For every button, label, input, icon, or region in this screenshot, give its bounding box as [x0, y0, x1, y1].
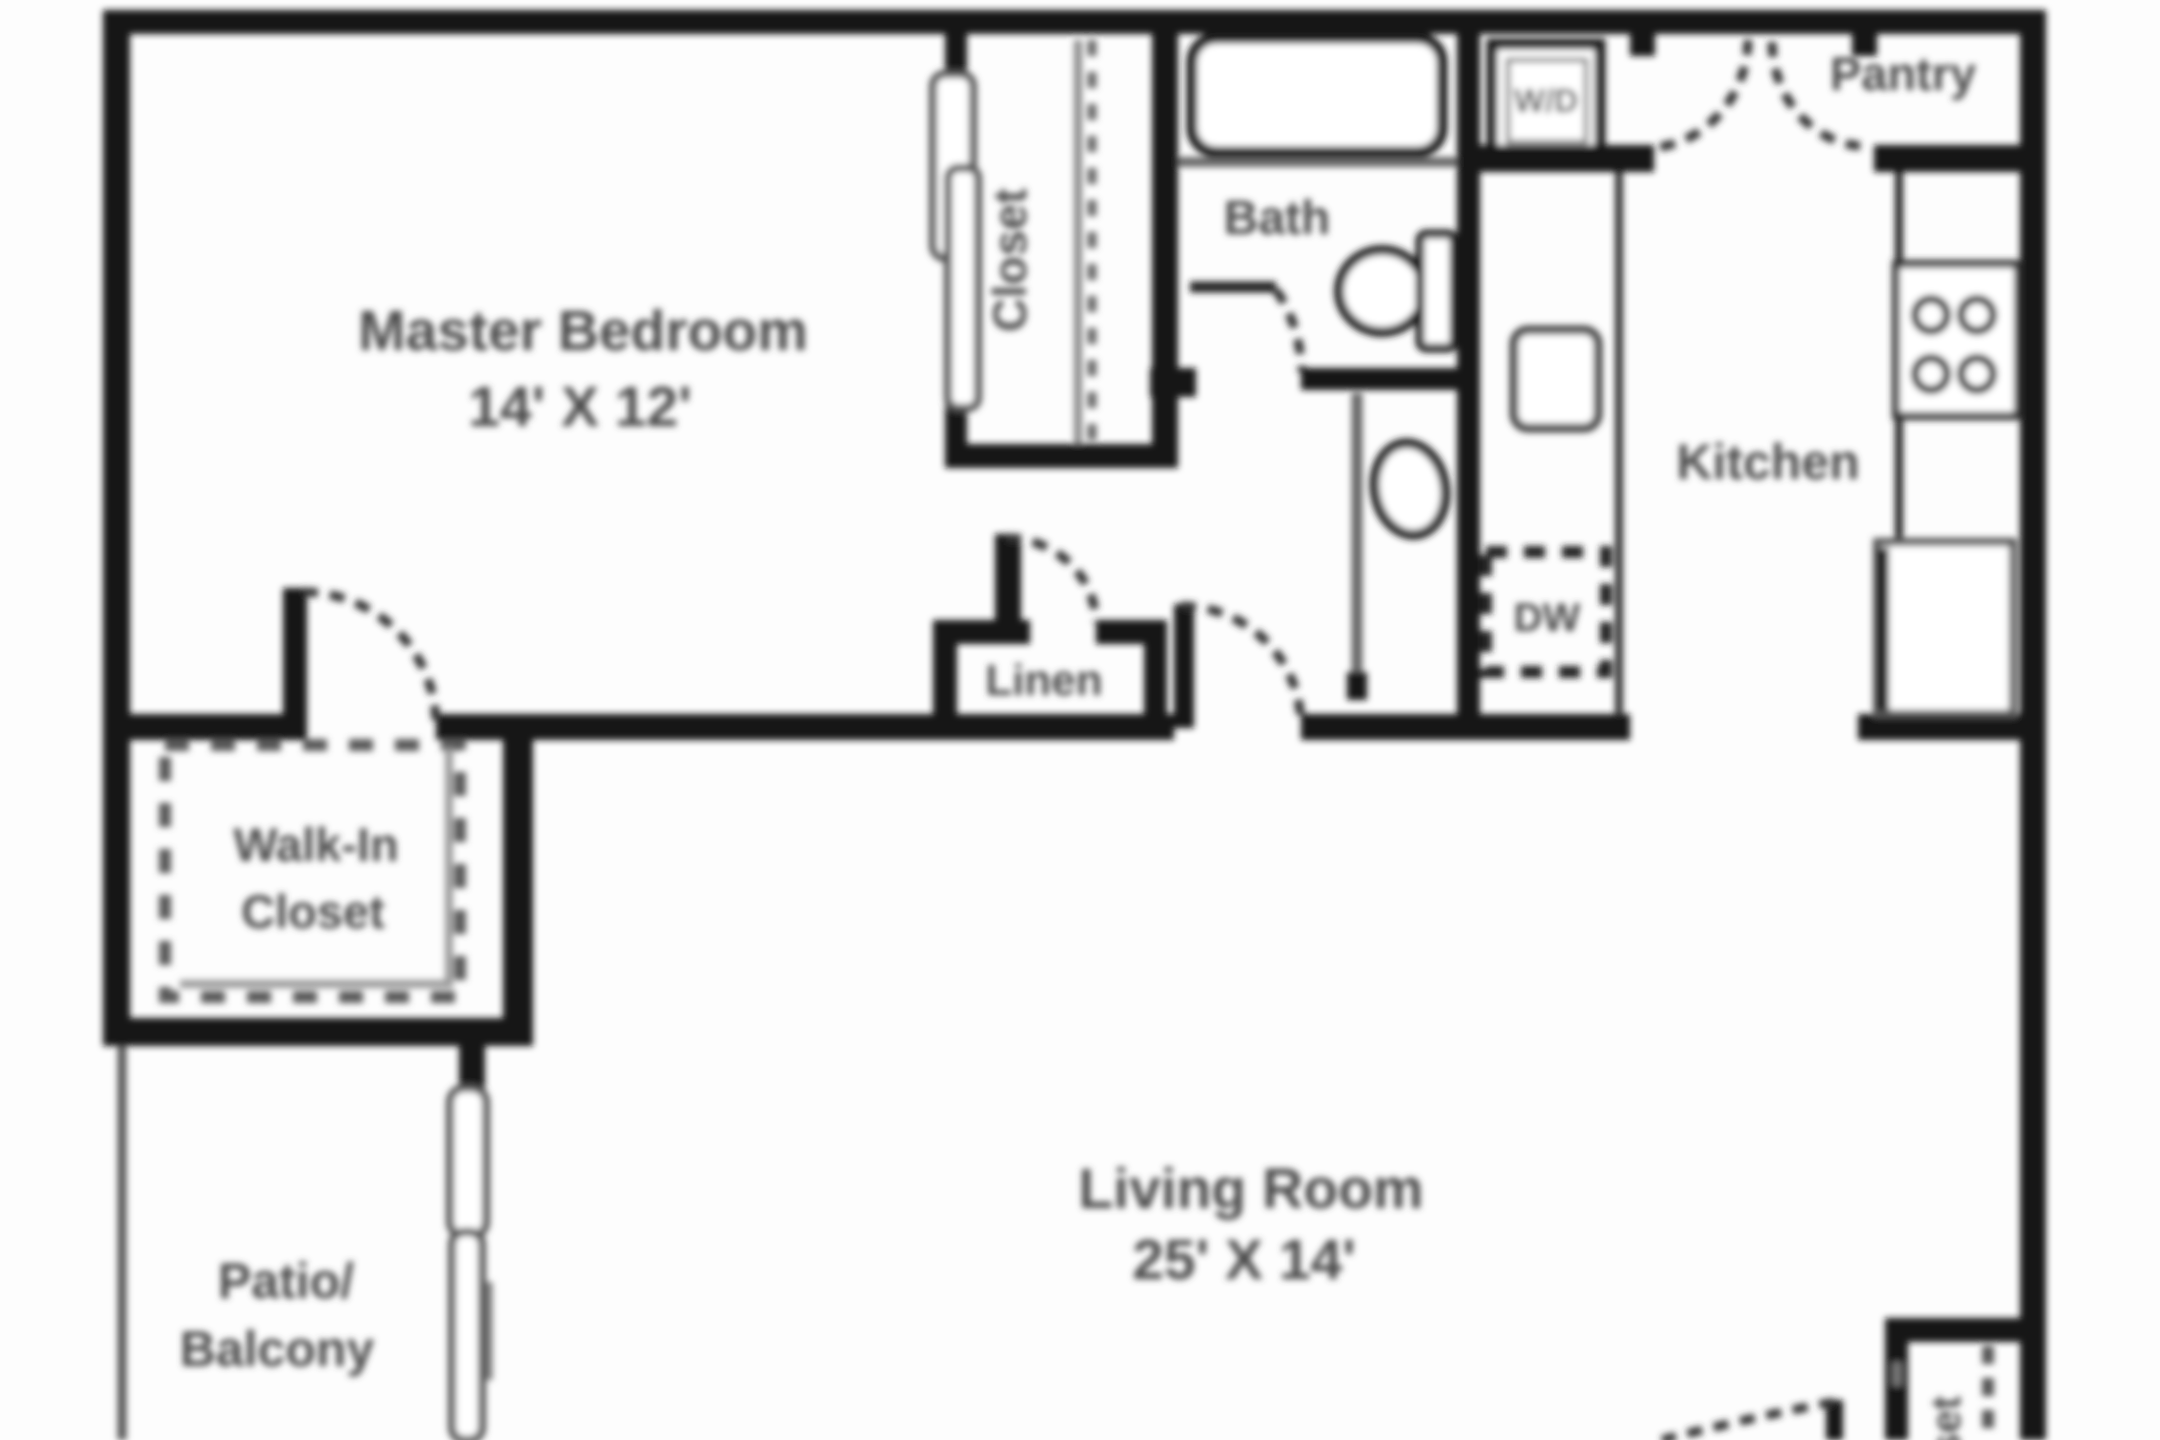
- svg-text:Balcony: Balcony: [180, 1321, 375, 1377]
- svg-text:W/D: W/D: [1514, 82, 1578, 119]
- svg-text:DW: DW: [1514, 596, 1581, 640]
- svg-text:Master Bedroom: Master Bedroom: [358, 299, 808, 363]
- svg-text:Pantry: Pantry: [1830, 47, 1976, 100]
- svg-text:Kitchen: Kitchen: [1676, 434, 1859, 490]
- svg-text:Closet: Closet: [1922, 1396, 1969, 1440]
- svg-text:Living Room: Living Room: [1078, 1157, 1423, 1221]
- svg-text:Closet: Closet: [983, 188, 1036, 332]
- svg-text:Bath: Bath: [1224, 192, 1331, 245]
- svg-text:Patio/: Patio/: [218, 1253, 354, 1309]
- svg-text:25' X 14': 25' X 14': [1132, 1228, 1356, 1292]
- svg-text:14' X 12': 14' X 12': [468, 375, 692, 439]
- svg-text:Walk-In: Walk-In: [233, 818, 398, 871]
- svg-text:Closet: Closet: [241, 885, 385, 938]
- svg-text:Linen: Linen: [985, 656, 1102, 705]
